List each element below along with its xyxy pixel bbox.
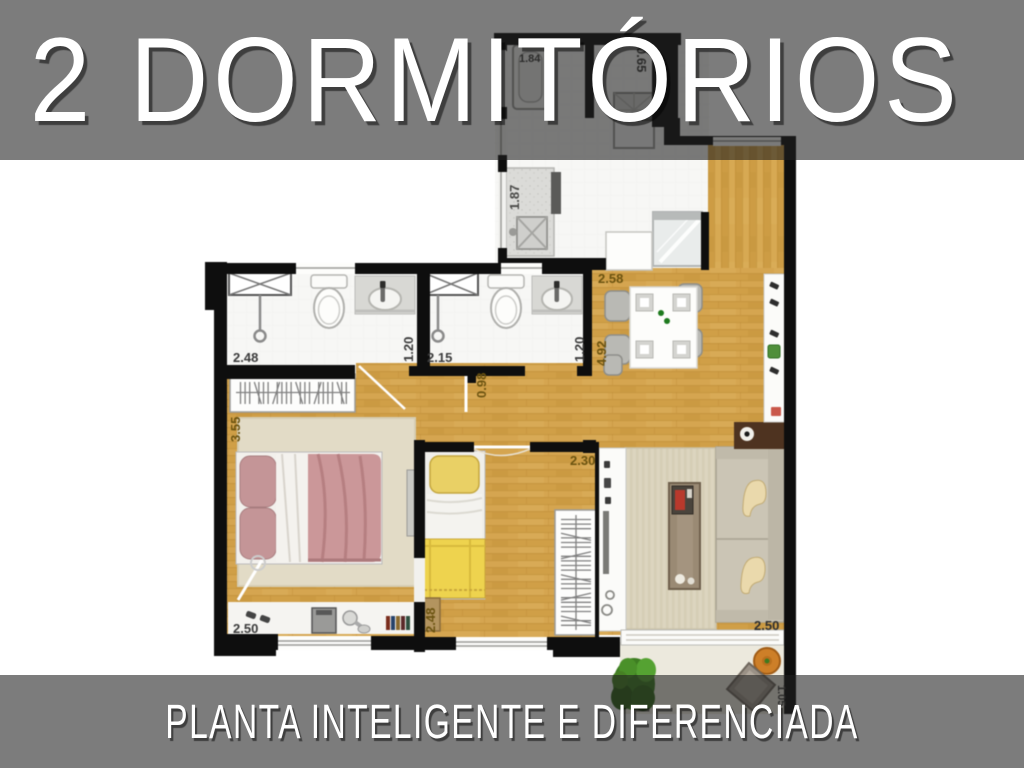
- svg-text:3.55: 3.55: [228, 417, 243, 442]
- svg-text:0.98: 0.98: [474, 373, 489, 398]
- svg-text:2.48: 2.48: [423, 608, 438, 633]
- svg-text:1.87: 1.87: [507, 185, 522, 210]
- svg-text:2.30: 2.30: [570, 453, 595, 468]
- svg-text:4.92: 4.92: [594, 341, 609, 366]
- svg-text:2.58: 2.58: [598, 271, 623, 286]
- svg-text:2.50: 2.50: [233, 621, 258, 636]
- svg-text:2.15: 2.15: [427, 350, 452, 365]
- svg-text:1.20: 1.20: [572, 337, 587, 362]
- svg-text:2.48: 2.48: [233, 350, 258, 365]
- svg-text:1.20: 1.20: [401, 337, 416, 362]
- svg-text:2.50: 2.50: [754, 618, 779, 633]
